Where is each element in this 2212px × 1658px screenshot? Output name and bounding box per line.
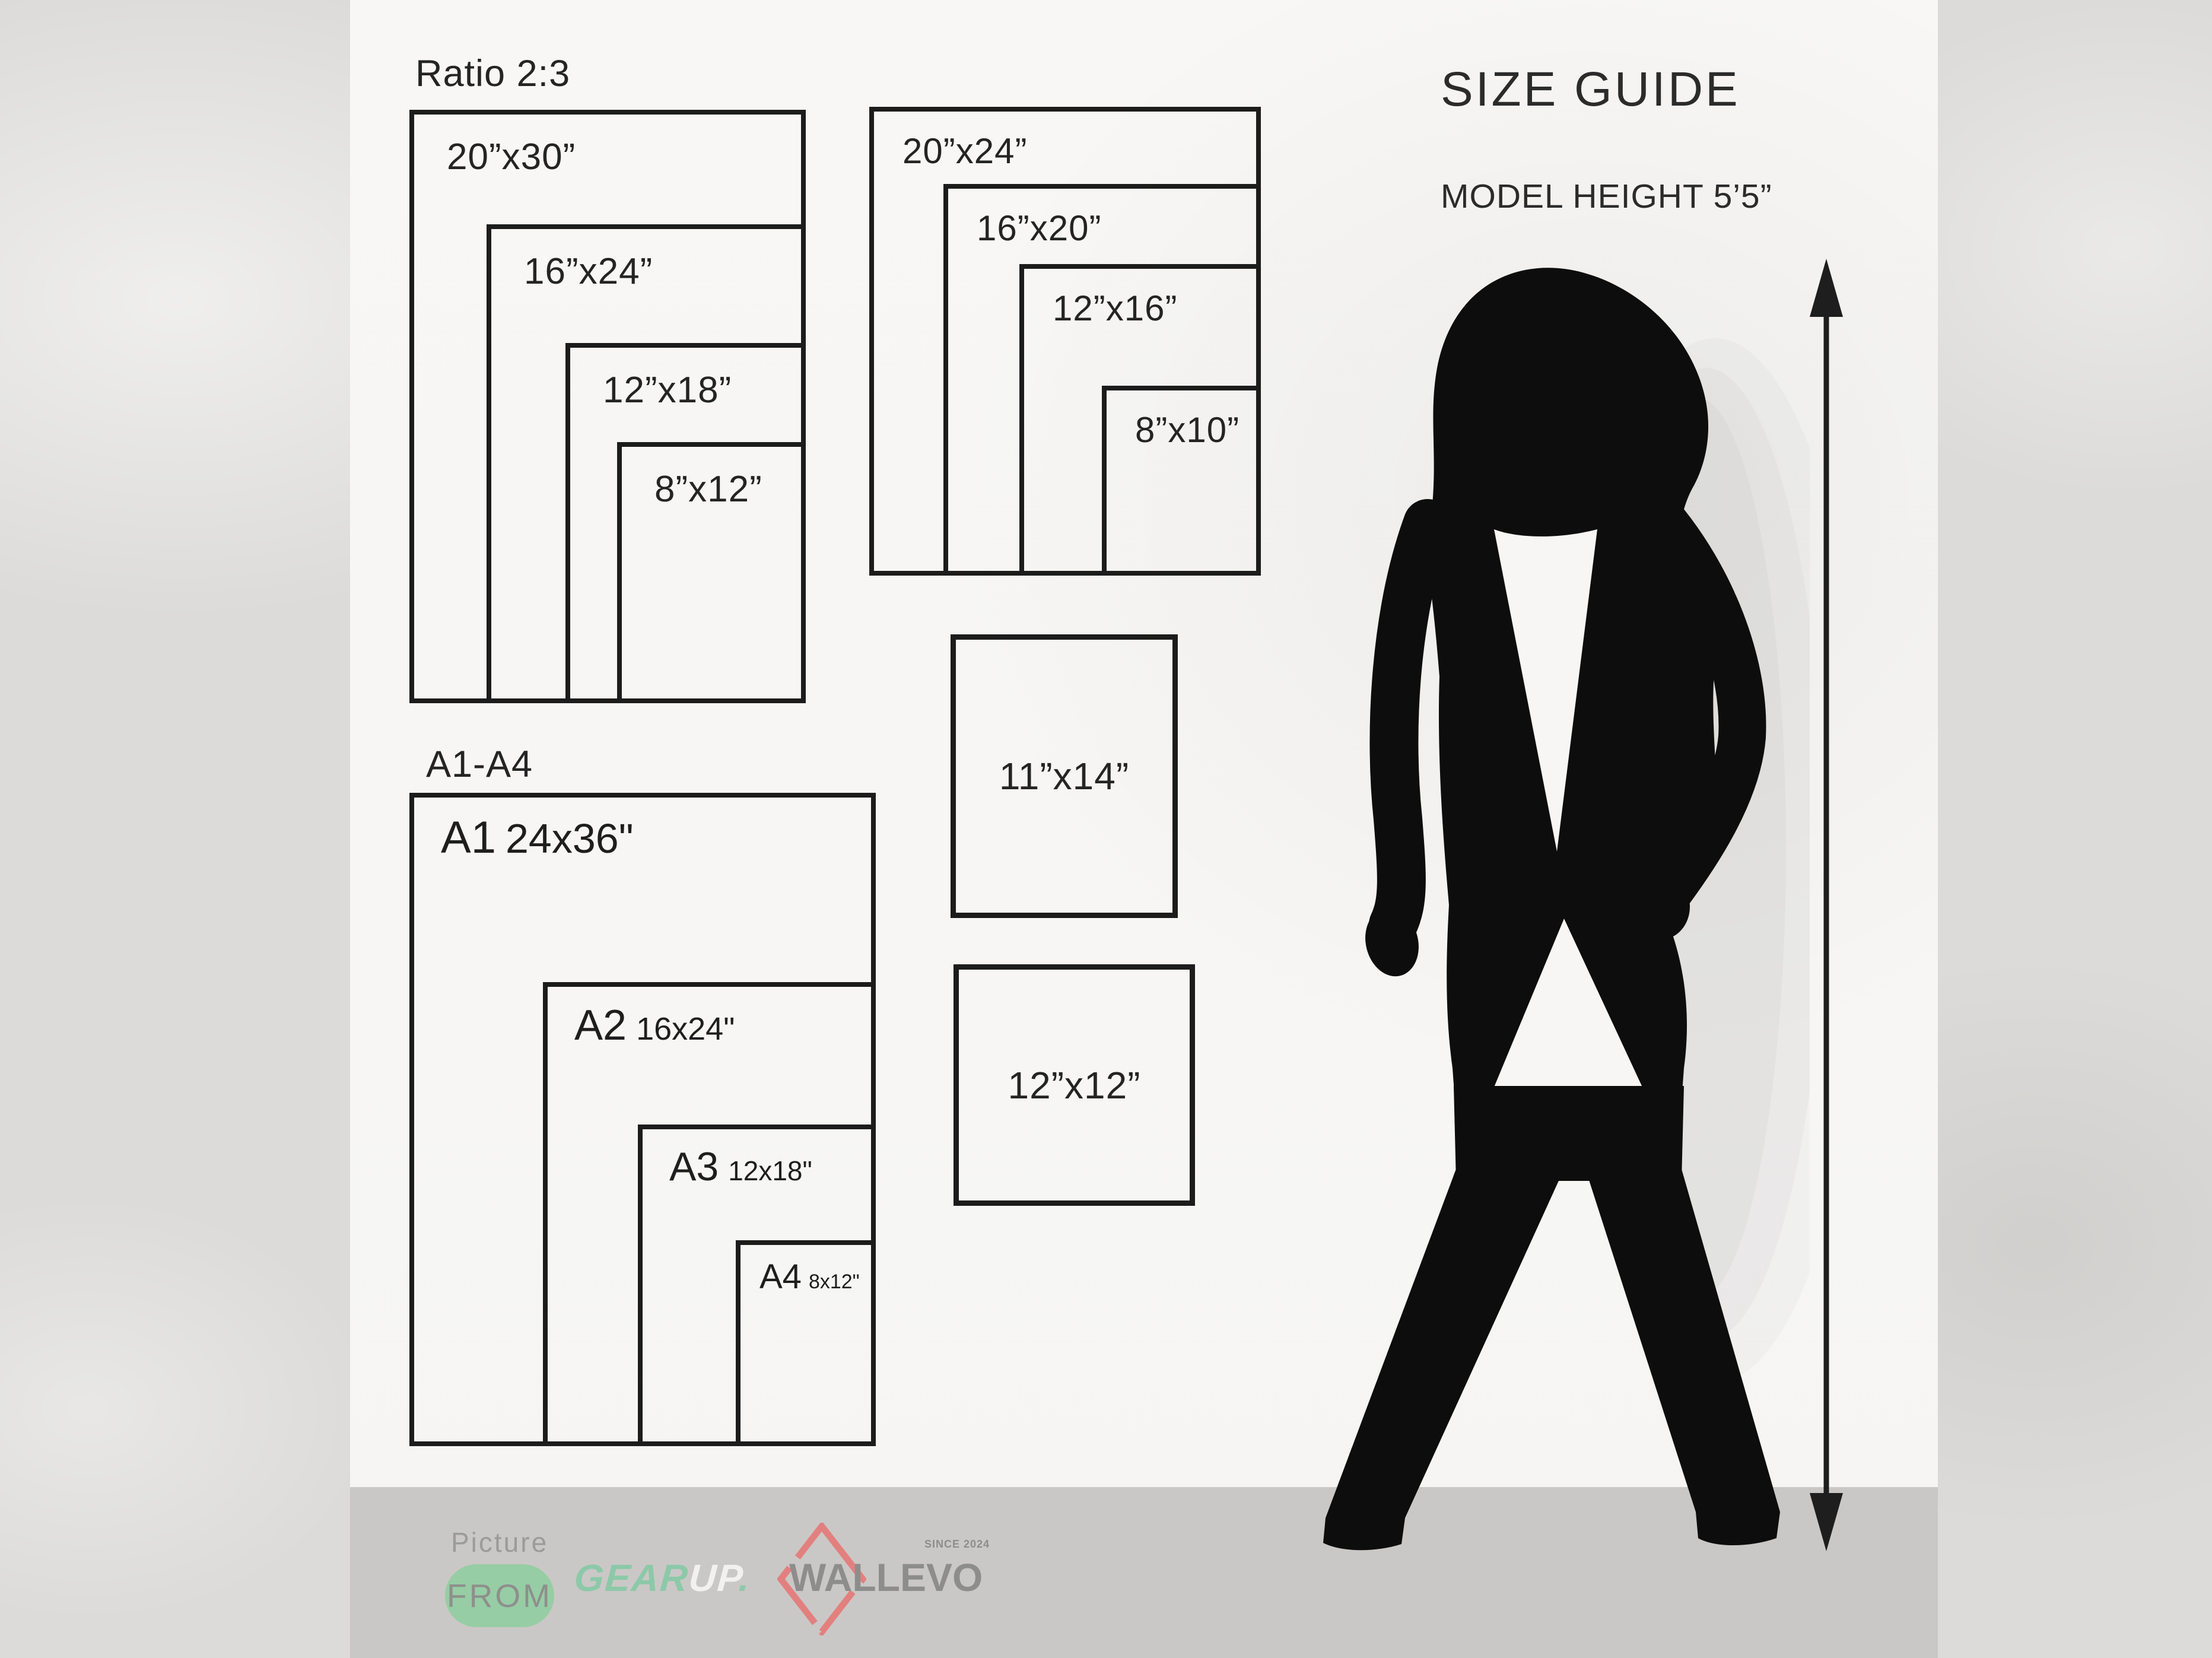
size-box-8x10: 8”x10” bbox=[1102, 386, 1261, 576]
size-box-a4: A4 8x12" bbox=[736, 1240, 876, 1446]
size-box-11x14: 11”x14” bbox=[951, 634, 1178, 918]
a-size: 12x18" bbox=[728, 1155, 812, 1187]
a-code: A1 bbox=[441, 812, 496, 863]
height-arrow bbox=[1801, 255, 1851, 1555]
a-series-group-title: A1-A4 bbox=[426, 743, 533, 786]
wallevo-logo: SINCE 2024 WALLEVO bbox=[771, 1512, 997, 1649]
size-label: 11”x14” bbox=[999, 754, 1129, 798]
size-label: 16”x24” bbox=[524, 250, 653, 293]
from-label: FROM bbox=[447, 1577, 552, 1615]
size-label: 12”x16” bbox=[1053, 288, 1177, 329]
size-label: 20”x30” bbox=[447, 136, 576, 178]
size-box-12x12: 12”x12” bbox=[954, 964, 1195, 1206]
a-size: 16x24" bbox=[636, 1011, 735, 1047]
size-label: 8”x10” bbox=[1135, 409, 1240, 450]
a-code: A2 bbox=[574, 1001, 627, 1050]
from-badge: FROM bbox=[445, 1564, 554, 1627]
page-title: SIZE GUIDE bbox=[1441, 62, 1740, 117]
picture-label: Picture bbox=[451, 1526, 548, 1558]
wallevo-name: WALLEVO bbox=[789, 1555, 983, 1600]
size-box-8x12: 8”x12” bbox=[617, 442, 806, 703]
size-label: 12”x12” bbox=[1008, 1063, 1141, 1107]
ratio-group-title: Ratio 2:3 bbox=[415, 52, 570, 95]
size-label: A3 12x18" bbox=[669, 1144, 812, 1190]
a-size: 24x36" bbox=[506, 815, 634, 862]
size-guide-image: Ratio 2:3 20”x30” 16”x24” 12”x18” 8”x12”… bbox=[0, 0, 2212, 1658]
size-label: A4 8x12" bbox=[759, 1257, 860, 1297]
gearup-logo-gear: GEAR bbox=[573, 1557, 690, 1599]
size-label: A2 16x24" bbox=[574, 1001, 735, 1050]
size-label: 20”x24” bbox=[902, 131, 1027, 171]
size-label: A1 24x36" bbox=[441, 812, 634, 863]
gearup-logo-up: UP bbox=[687, 1557, 740, 1599]
size-label: 16”x20” bbox=[977, 208, 1101, 249]
gearup-logo: GEARUP. bbox=[573, 1556, 752, 1600]
a-size: 8x12" bbox=[809, 1271, 860, 1294]
a-code: A3 bbox=[669, 1144, 719, 1190]
wallevo-since-label: SINCE 2024 bbox=[924, 1538, 990, 1551]
model-silhouette bbox=[1305, 255, 1810, 1561]
model-height-label: MODEL HEIGHT 5’5” bbox=[1441, 177, 1772, 216]
size-label: 12”x18” bbox=[603, 369, 732, 411]
a-code: A4 bbox=[759, 1257, 802, 1297]
size-label: 8”x12” bbox=[654, 468, 762, 510]
